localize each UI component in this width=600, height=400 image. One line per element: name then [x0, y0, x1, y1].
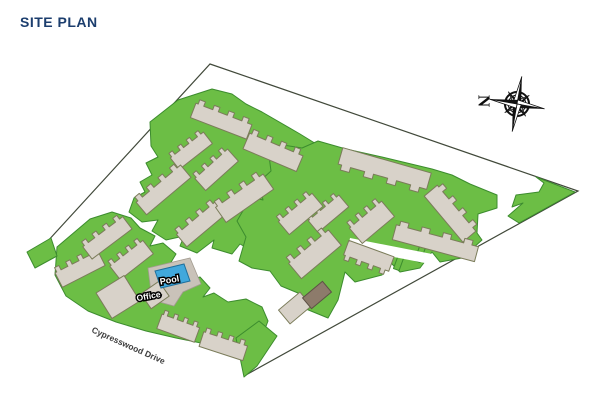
site-plan-map: Pool Office Cypresswood Drive N SITE PLA… [0, 0, 600, 400]
lawn-right-chevron [508, 177, 575, 223]
page-title: SITE PLAN [20, 14, 98, 30]
lawn-west-wedge [27, 238, 57, 268]
compass-north-letter: N [475, 95, 494, 108]
